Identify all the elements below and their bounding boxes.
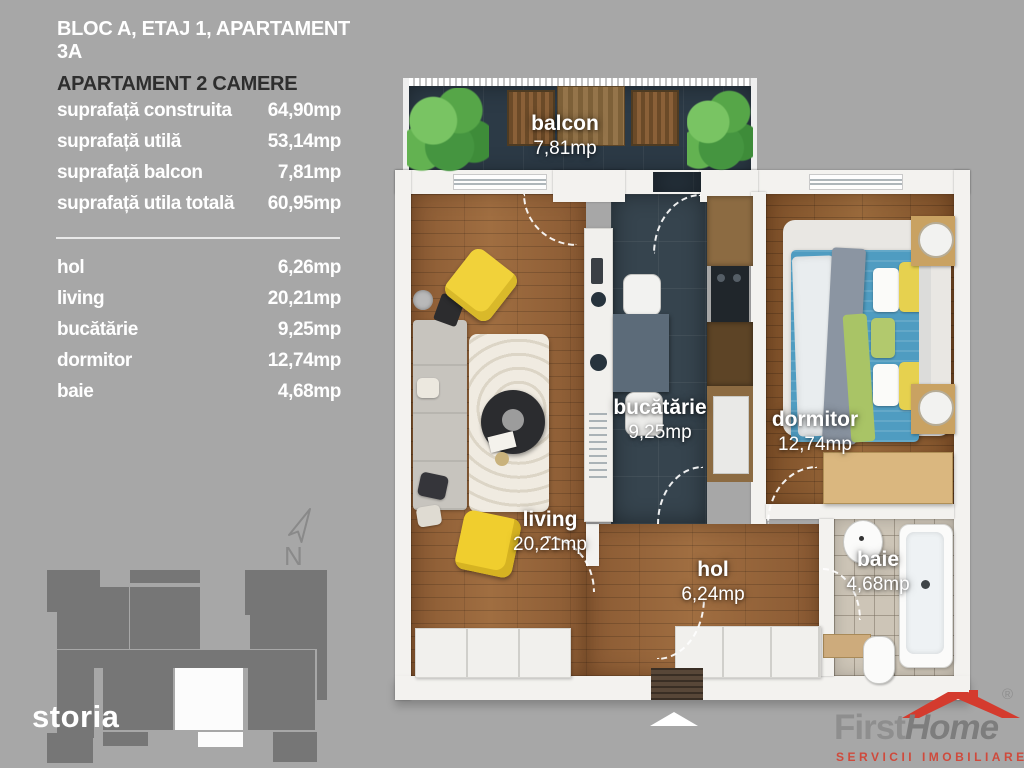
title-line-location: BLOC A, ETAJ 1, APARTAMENT 3A [57,18,357,64]
room-area: 12,74mp [745,433,885,458]
balcony-label: balcon 7,81mp [500,110,630,162]
surface-label: suprafață balcon [57,162,203,184]
bathroom-label: baie 4,68mp [818,546,938,598]
balcony-plant-left [407,88,489,174]
room-label: bucătărie [57,319,138,341]
balcony-railing [403,78,757,86]
room-area: 20,21mp [490,533,610,558]
surface-value: 7,81mp [278,162,341,184]
room-name: dormitor [745,406,885,433]
kitchen-cabinet-top [707,196,753,266]
sink-drain [859,536,864,541]
room-name: living [490,506,610,533]
silhouette-highlighted-unit [175,668,243,730]
room-value: 20,21mp [268,288,341,310]
nightstand-lamp [918,390,954,426]
sofa-pillow [417,378,439,398]
living-label: living 20,21mp [490,506,610,558]
coffee-table-tray [502,409,524,431]
room-value: 4,68mp [278,381,341,403]
room-name: bucătărie [595,394,725,421]
firsthome-wordmark: FirstHome [834,708,998,748]
kitchen-counter-dark [707,322,753,386]
building-silhouette [45,563,345,768]
balcony-chair-right [631,90,679,146]
table-row: living 20,21mp [57,283,341,314]
hallway-label: hol 6,24mp [653,556,773,608]
room-label: living [57,288,104,310]
table-row: dormitor 12,74mp [57,345,341,376]
room-name: baie [818,546,938,573]
silhouette-block [57,587,129,649]
silhouette-block [273,732,317,762]
screenshot-root: BLOC A, ETAJ 1, APARTAMENT 3A APARTAMENT… [0,0,1024,768]
kitchen-chair-top [623,274,661,316]
oven-knob [717,274,725,282]
table-row: suprafață utilă 53,14mp [57,126,341,157]
table-row: suprafață construita 64,90mp [57,95,341,126]
firsthome-tagline: SERVICII IMOBILIARE [836,750,1024,764]
surface-value: 53,14mp [268,131,341,153]
counter-appliance [591,258,603,284]
room-label: hol [57,257,84,279]
silhouette-block [248,668,315,730]
room-label: baie [57,381,93,403]
room-label: dormitor [57,350,132,372]
nightstand-lamp [918,222,954,258]
bedroom-label: dormitor 12,74mp [745,406,885,458]
storia-logo: storia [32,699,119,735]
table-row: suprafață balcon 7,81mp [57,157,341,188]
room-name: balcon [500,110,630,137]
room-value: 12,74mp [268,350,341,372]
bed-pillow-green [871,318,895,358]
floorplan: balcon 7,81mp [395,78,970,700]
counter-sink-bowl [591,292,606,307]
sofa-pillow [416,504,443,528]
kitchen-balcony-doorway [653,172,701,192]
room-area: 7,81mp [500,137,630,162]
kitchen-oven [711,266,749,322]
room-area: 4,68mp [818,573,938,598]
room-name: hol [653,556,773,583]
side-table [413,290,433,310]
panel-divider [56,237,340,239]
wall-left [395,170,411,700]
table-row: suprafață utila totală 60,95mp [57,188,341,219]
kitchen-label: bucătărie 9,25mp [595,394,725,446]
surface-value: 64,90mp [268,100,341,122]
room-table: hol 6,26mp living 20,21mp bucătărie 9,25… [57,252,341,407]
firsthome-first: First [834,708,905,747]
wall-right [954,170,970,700]
room-value: 6,26mp [278,257,341,279]
surface-label: suprafață utila totală [57,193,234,215]
silhouette-block [130,587,200,649]
surface-table: suprafață construita 64,90mp suprafață u… [57,95,341,219]
surface-label: suprafață construita [57,100,232,122]
title-line-type: APARTAMENT 2 CAMERE [57,73,357,96]
bedroom-window [809,174,903,190]
silhouette-highlighted-entrance [198,732,243,747]
page-title: BLOC A, ETAJ 1, APARTAMENT 3A APARTAMENT… [57,18,357,96]
plate [495,452,509,466]
firsthome-logo: ® FirstHome SERVICII IMOBILIARE [818,684,1024,768]
toilet [863,636,895,684]
compass: N [272,504,330,572]
room-area: 6,24mp [653,583,773,608]
entry-doormat [651,668,703,700]
surface-value: 60,95mp [268,193,341,215]
silhouette-block [57,650,315,668]
wall-kitchen-bedroom [751,192,766,524]
room-value: 9,25mp [278,319,341,341]
bedroom-dresser [823,452,953,504]
table-row: bucătărie 9,25mp [57,314,341,345]
bed-pillow-white [873,364,899,406]
balcony-plant-right [687,90,753,174]
living-sideboard [415,628,571,678]
table-row: baie 4,68mp [57,376,341,407]
table-row: hol 6,26mp [57,252,341,283]
kitchen-table [613,314,669,392]
firsthome-home: Home [905,708,998,747]
bed-pillow-white [873,268,899,312]
silhouette-block [130,570,200,583]
silhouette-block [317,615,327,700]
silhouette-block [47,733,93,763]
room-area: 9,25mp [595,421,725,446]
living-window [453,174,547,190]
surface-label: suprafață utilă [57,131,181,153]
counter-hob [590,354,607,371]
oven-knob [733,274,741,282]
entry-arrow-icon [650,712,698,726]
silhouette-block [250,587,317,649]
